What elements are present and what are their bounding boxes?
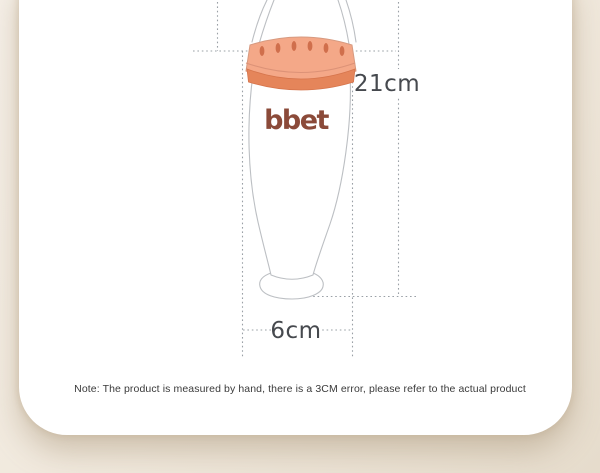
cap-slot-icon	[308, 41, 313, 51]
cap-slot-icon	[260, 46, 265, 56]
spoon-left-inner-line	[259, 0, 274, 44]
bottle-dimension-diagram: bbet 21cm 6cm	[0, 0, 600, 473]
measurement-note: Note: The product is measured by hand, t…	[0, 383, 600, 395]
height-label: 21cm	[354, 71, 420, 97]
cap-slot-icon	[324, 43, 329, 53]
width-label: 6cm	[270, 318, 321, 344]
bottle-illustration: bbet	[246, 0, 356, 299]
cap-slot-icon	[340, 46, 345, 56]
cap-slot-icon	[276, 43, 281, 53]
spoon-right-inner-line	[338, 0, 349, 44]
brand-logo: bbet	[264, 105, 329, 136]
cap-slot-icon	[292, 41, 297, 51]
spoon-left-outer-line	[252, 0, 267, 42]
